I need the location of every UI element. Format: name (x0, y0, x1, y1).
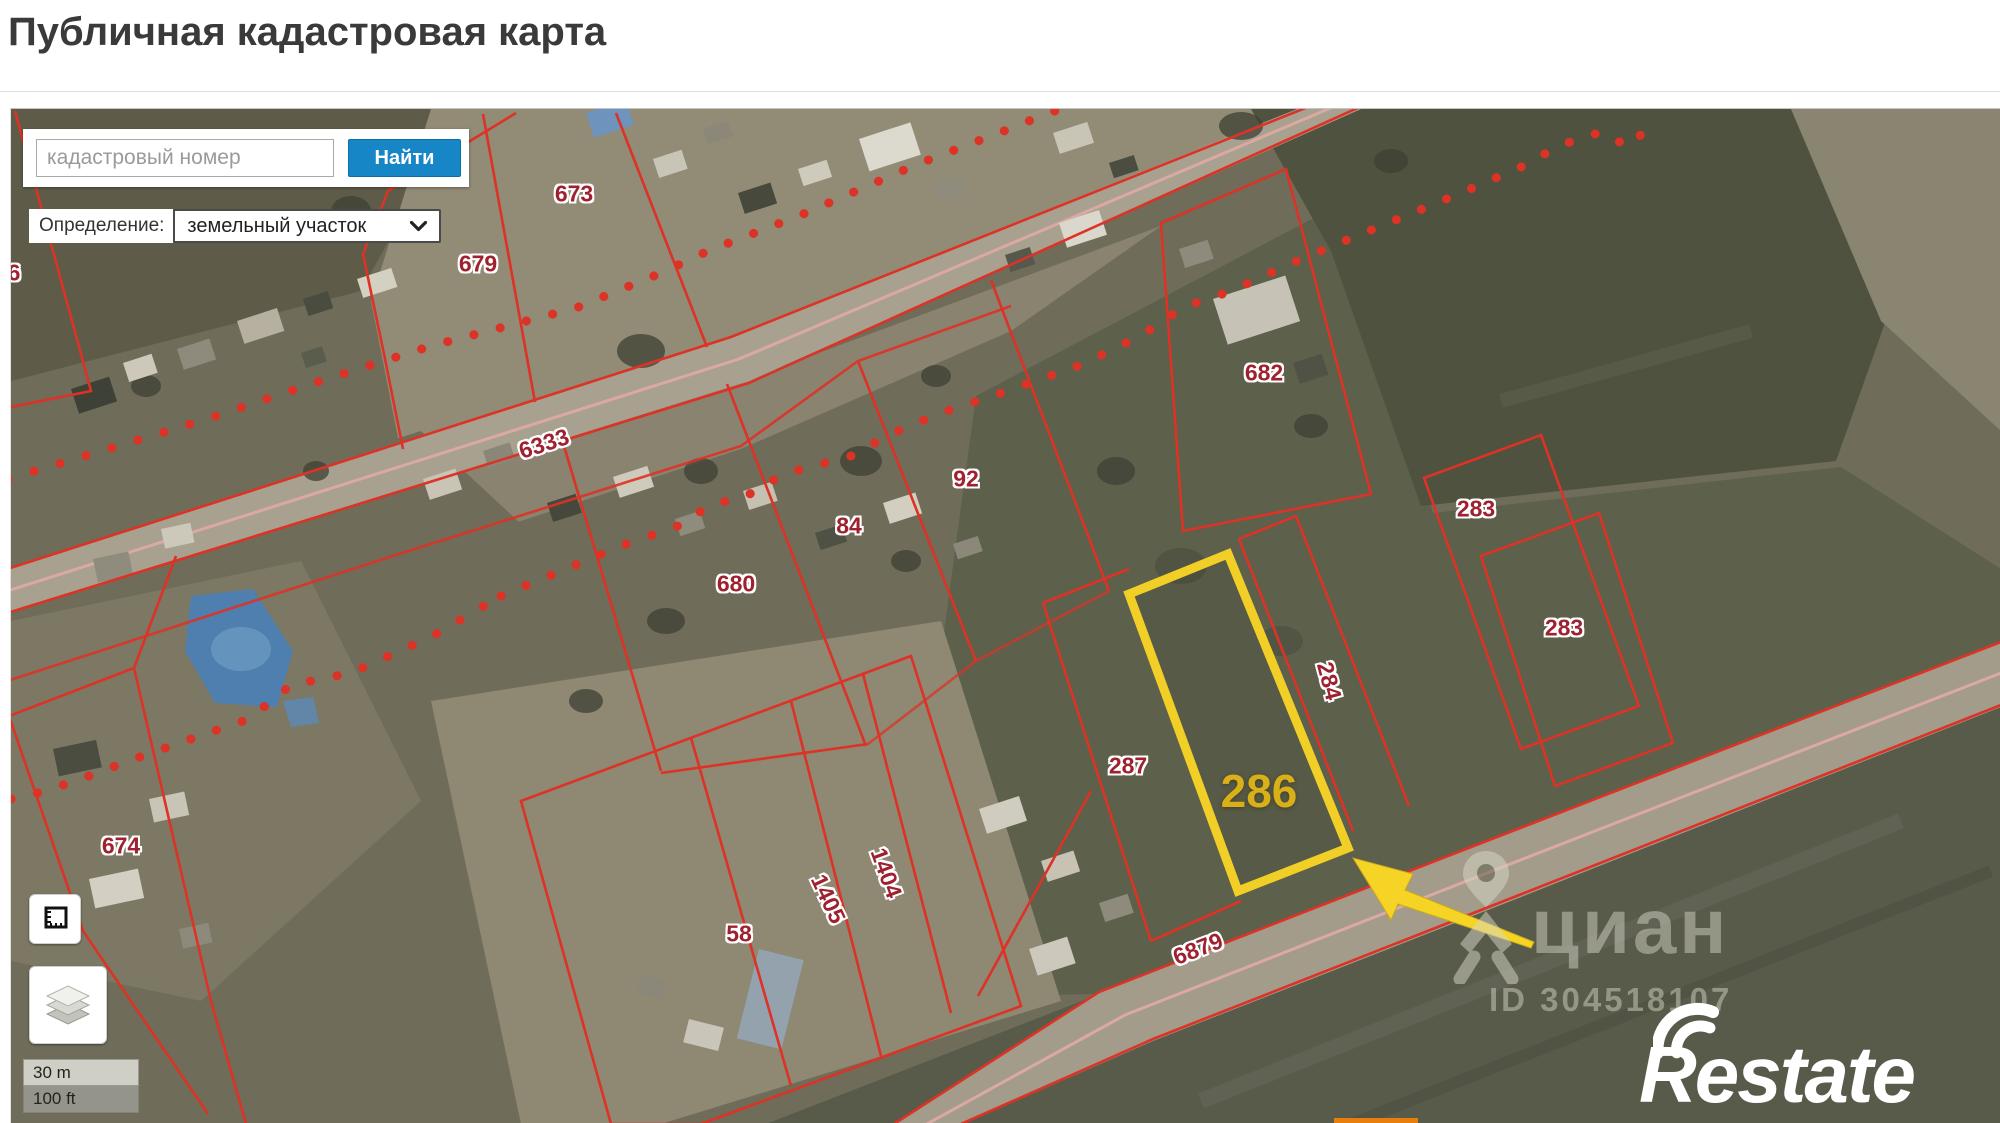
measure-tool-button[interactable] (29, 894, 81, 944)
layers-tool-button[interactable] (29, 966, 107, 1044)
filter-row: Определение: земельный участок (29, 209, 441, 243)
measure-icon (39, 904, 71, 934)
page-title: Публичная кадастровая карта (0, 0, 2000, 55)
map-canvas[interactable]: 6736796633384926806822832832842876745814… (10, 108, 2000, 1123)
search-button[interactable]: Найти (348, 139, 461, 177)
satellite-map (11, 109, 2000, 1123)
search-input[interactable] (36, 139, 334, 177)
page-header: Публичная кадастровая карта (0, 0, 2000, 92)
object-type-select[interactable]: земельный участок (173, 209, 441, 243)
search-panel: Найти (23, 129, 469, 187)
cropped-logo-fragment (1334, 1118, 1418, 1123)
chevron-down-icon (410, 221, 427, 232)
scale-imperial: 100 ft (23, 1086, 139, 1113)
layers-icon (43, 980, 93, 1030)
filter-label: Определение: (29, 209, 173, 243)
scale-metric: 30 m (23, 1059, 139, 1086)
cadastral-map-page: Публичная кадастровая карта (0, 0, 2000, 1123)
object-type-value: земельный участок (187, 215, 366, 238)
